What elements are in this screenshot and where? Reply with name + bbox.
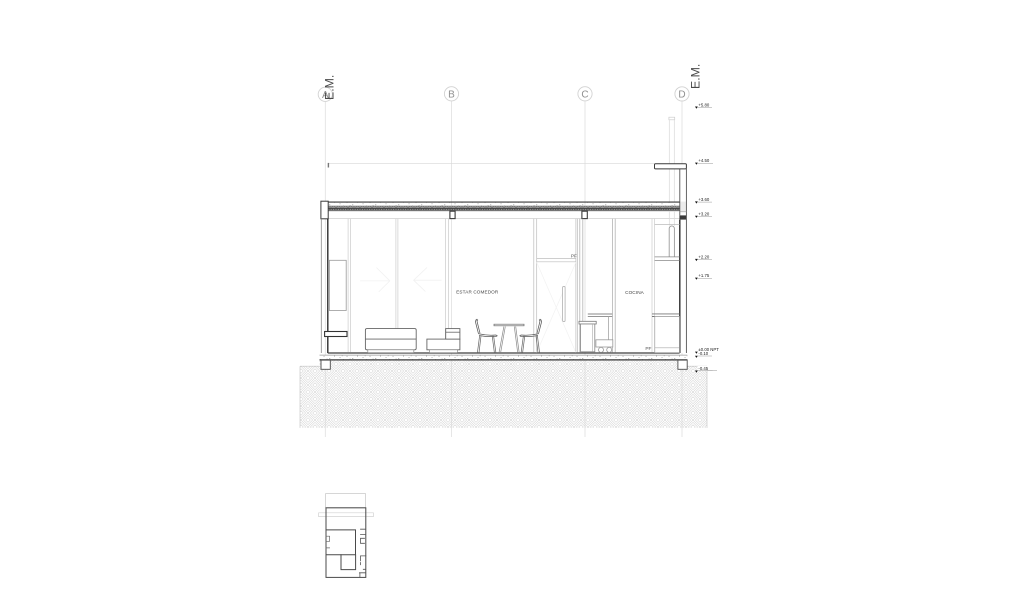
svg-text:-0.10: -0.10 xyxy=(698,351,708,356)
svg-text:ESTAR COMEDOR: ESTAR COMEDOR xyxy=(456,290,499,295)
svg-text:+3.60: +3.60 xyxy=(698,197,709,202)
svg-text:C: C xyxy=(581,89,588,100)
svg-text:E.M.: E.M. xyxy=(689,64,703,89)
svg-text:-0.45: -0.45 xyxy=(698,366,708,371)
svg-text:COCINA: COCINA xyxy=(625,290,645,295)
svg-text:B: B xyxy=(448,89,455,100)
svg-text:PF: PF xyxy=(645,346,651,352)
svg-text:D: D xyxy=(678,89,685,100)
svg-text:E.M.: E.M. xyxy=(323,75,337,100)
svg-text:+5.80: +5.80 xyxy=(698,102,709,107)
svg-text:+3.20: +3.20 xyxy=(698,211,709,216)
svg-text:PF: PF xyxy=(571,254,577,260)
svg-text:+1.75: +1.75 xyxy=(698,273,709,278)
svg-text:+2.20: +2.20 xyxy=(698,255,709,260)
svg-text:+4.50: +4.50 xyxy=(698,158,709,163)
